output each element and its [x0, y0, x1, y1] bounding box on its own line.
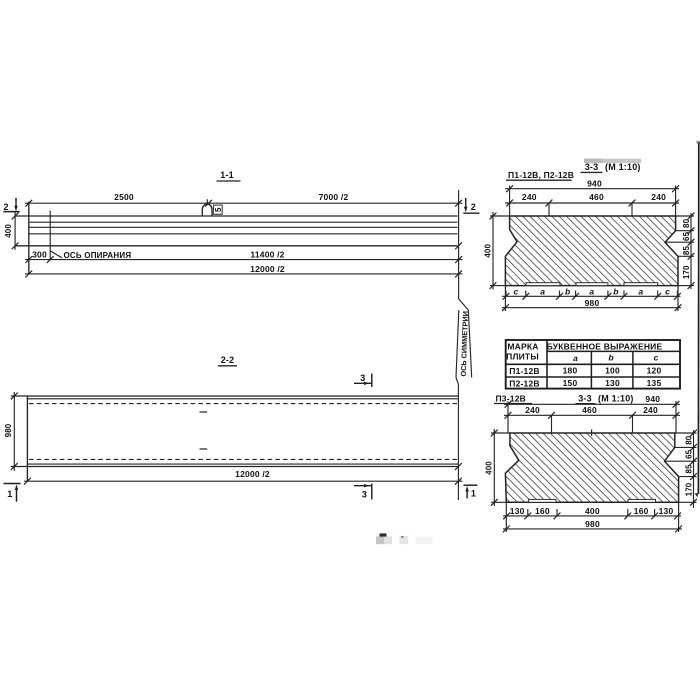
svg-text:(М 1:10): (М 1:10): [598, 393, 634, 403]
svg-text:b: b: [565, 287, 570, 297]
svg-text:980: 980: [4, 423, 13, 437]
svg-text:400: 400: [585, 506, 600, 516]
svg-text:240: 240: [643, 405, 658, 415]
svg-text:2: 2: [4, 202, 9, 212]
svg-text:135: 135: [647, 378, 662, 388]
svg-text:170: 170: [682, 265, 691, 279]
svg-text:3-3: 3-3: [578, 393, 592, 403]
svg-text:300: 300: [32, 250, 47, 260]
svg-text:65: 65: [682, 231, 691, 241]
svg-text:a: a: [589, 287, 594, 297]
svg-text:b: b: [608, 353, 613, 363]
svg-text:400: 400: [483, 244, 492, 258]
svg-text:a: a: [540, 287, 545, 297]
svg-text:3: 3: [360, 373, 365, 383]
svg-text:5: 5: [214, 207, 223, 212]
svg-text:160: 160: [634, 506, 649, 516]
svg-text:c: c: [665, 287, 670, 297]
svg-text:ОСЬ СИММЕТРИИ: ОСЬ СИММЕТРИИ: [459, 311, 470, 377]
svg-text:12000 /2: 12000 /2: [250, 264, 285, 274]
svg-text:3-3: 3-3: [585, 162, 599, 172]
svg-text:940: 940: [645, 394, 660, 404]
svg-text:(М 1:10): (М 1:10): [605, 162, 641, 172]
svg-text:240: 240: [525, 405, 540, 415]
svg-text:2-2: 2-2: [221, 355, 235, 365]
svg-text:240: 240: [651, 192, 666, 202]
svg-text:П1-12В: П1-12В: [509, 366, 539, 376]
svg-text:150: 150: [563, 378, 578, 388]
svg-text:120: 120: [647, 366, 662, 376]
svg-text:170: 170: [685, 482, 694, 496]
svg-text:7000 /2: 7000 /2: [319, 192, 349, 202]
svg-text:2: 2: [471, 202, 476, 212]
svg-text:460: 460: [589, 192, 604, 202]
svg-text:85: 85: [685, 464, 694, 474]
svg-text:2500: 2500: [114, 192, 134, 202]
svg-text:БУКВЕННОЕ ВЫРАЖЕНИЕ: БУКВЕННОЕ ВЫРАЖЕНИЕ: [547, 342, 663, 352]
svg-text:11400 /2: 11400 /2: [250, 250, 284, 260]
svg-text:130: 130: [605, 378, 620, 388]
svg-text:980: 980: [585, 298, 600, 308]
svg-text:130: 130: [659, 506, 674, 516]
svg-text:180: 180: [563, 366, 578, 376]
svg-text:МАРКА: МАРКА: [507, 342, 538, 352]
svg-text:100: 100: [605, 366, 620, 376]
svg-text:980: 980: [585, 519, 600, 529]
svg-text:b: b: [613, 287, 618, 297]
svg-text:400: 400: [4, 224, 13, 238]
svg-text:12000 /2: 12000 /2: [235, 469, 270, 479]
svg-text:c: c: [514, 287, 519, 297]
svg-text:ОСЬ ОПИРАНИЯ: ОСЬ ОПИРАНИЯ: [64, 251, 132, 260]
svg-text:85: 85: [682, 246, 691, 256]
svg-text:1: 1: [7, 489, 12, 499]
svg-text:c: c: [654, 353, 659, 363]
svg-text:460: 460: [582, 405, 597, 415]
svg-text:160: 160: [535, 506, 550, 516]
svg-text:240: 240: [522, 192, 537, 202]
svg-text:130: 130: [510, 506, 525, 516]
svg-text:П1-12В, П2-12В: П1-12В, П2-12В: [508, 170, 574, 180]
svg-text:ПЛИТЫ: ПЛИТЫ: [506, 352, 539, 362]
svg-text:a: a: [638, 287, 643, 297]
svg-text:80: 80: [682, 218, 691, 228]
svg-text:3: 3: [362, 489, 367, 499]
svg-text:1: 1: [471, 489, 476, 499]
svg-text:940: 940: [587, 179, 602, 189]
svg-text:П2-12В: П2-12В: [509, 378, 539, 388]
svg-text:a: a: [573, 353, 578, 363]
svg-text:400: 400: [485, 461, 494, 475]
svg-text:65: 65: [685, 449, 694, 459]
svg-text:80: 80: [685, 435, 694, 445]
svg-text:1-1: 1-1: [220, 170, 234, 180]
